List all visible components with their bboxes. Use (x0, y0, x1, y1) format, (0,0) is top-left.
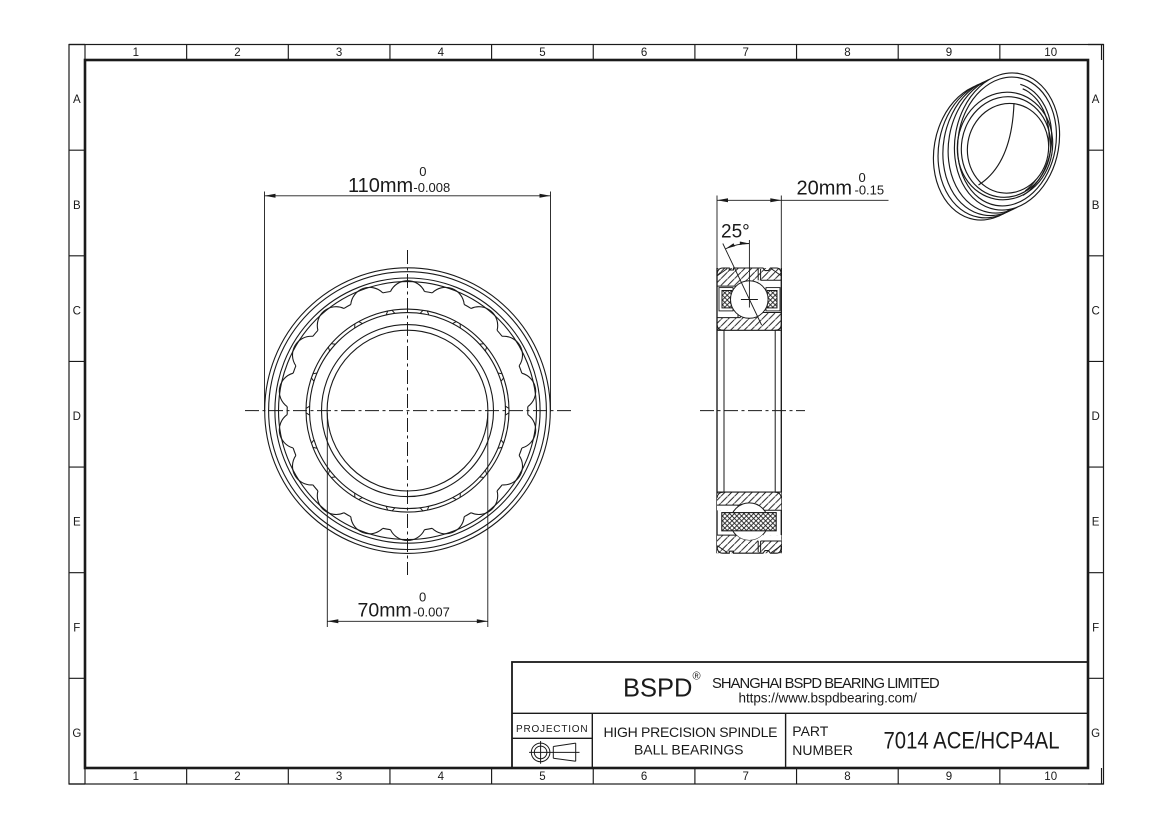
svg-text:B: B (1092, 200, 1100, 212)
svg-text:PART: PART (792, 723, 828, 739)
svg-text:3: 3 (336, 47, 342, 59)
svg-text:B: B (73, 200, 81, 212)
svg-text:G: G (72, 728, 81, 740)
svg-text:8: 8 (844, 47, 850, 59)
svg-text:NUMBER: NUMBER (792, 742, 853, 758)
svg-text:SHANGHAI BSPD BEARING LIMITED: SHANGHAI BSPD BEARING LIMITED (712, 676, 940, 692)
svg-text:5: 5 (539, 47, 545, 59)
svg-text:BALL BEARINGS: BALL BEARINGS (634, 742, 744, 758)
svg-text:G: G (1091, 728, 1100, 740)
svg-text:0: 0 (419, 590, 426, 605)
svg-text:5: 5 (539, 771, 545, 783)
svg-text:9: 9 (946, 771, 952, 783)
svg-text:7014 ACE/HCP4AL: 7014 ACE/HCP4AL (884, 728, 1060, 755)
svg-text:F: F (1092, 622, 1099, 634)
svg-text:D: D (1091, 411, 1099, 423)
svg-text:1: 1 (133, 47, 139, 59)
svg-text:A: A (1092, 94, 1100, 106)
svg-text:8: 8 (844, 771, 850, 783)
svg-text:6: 6 (641, 47, 647, 59)
svg-text:HIGH PRECISION SPINDLE: HIGH PRECISION SPINDLE (604, 724, 778, 740)
svg-text:3: 3 (336, 771, 342, 783)
svg-text:70mm: 70mm (358, 600, 412, 622)
svg-text:20mm: 20mm (797, 177, 853, 199)
svg-text:-0.008: -0.008 (413, 180, 450, 195)
svg-text:1: 1 (133, 771, 139, 783)
svg-text:10: 10 (1044, 771, 1057, 783)
svg-text:E: E (73, 517, 81, 529)
svg-text:D: D (73, 411, 81, 423)
svg-text:2: 2 (234, 47, 240, 59)
svg-text:C: C (1091, 305, 1099, 317)
svg-text:https://www.bspdbearing.com/: https://www.bspdbearing.com/ (739, 691, 918, 706)
svg-text:25°: 25° (721, 222, 750, 243)
svg-text:7: 7 (742, 771, 748, 783)
svg-text:C: C (73, 305, 81, 317)
svg-text:10: 10 (1044, 47, 1057, 59)
svg-text:2: 2 (234, 771, 240, 783)
svg-text:0: 0 (419, 164, 426, 179)
svg-text:9: 9 (946, 47, 952, 59)
svg-text:-0.007: -0.007 (413, 605, 450, 620)
svg-text:A: A (73, 94, 81, 106)
svg-text:BSPD: BSPD (623, 675, 692, 703)
svg-text:4: 4 (438, 47, 445, 59)
svg-text:-0.15: -0.15 (855, 182, 885, 197)
svg-text:PROJECTION: PROJECTION (516, 724, 588, 735)
svg-text:F: F (73, 622, 80, 634)
svg-text:110mm: 110mm (348, 175, 413, 197)
svg-text:6: 6 (641, 771, 647, 783)
svg-text:7: 7 (742, 47, 748, 59)
svg-text:E: E (1092, 517, 1100, 529)
svg-text:4: 4 (438, 771, 445, 783)
svg-text:®: ® (693, 671, 701, 683)
